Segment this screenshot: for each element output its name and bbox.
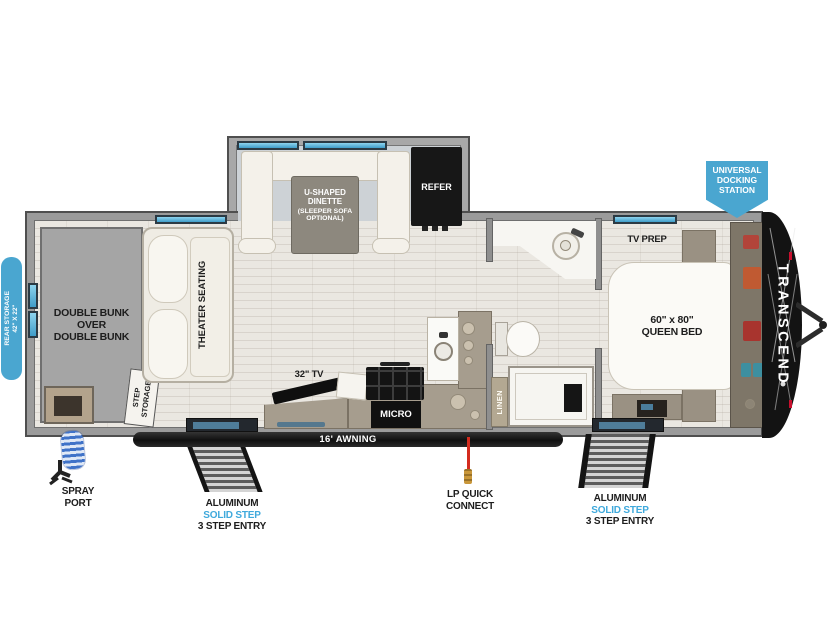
- nightstand-bottom: [682, 388, 716, 422]
- micro-label: MICRO: [380, 409, 412, 420]
- storage-knob: [745, 399, 755, 409]
- entry-door-right: [592, 418, 664, 432]
- entry-steps-left: [187, 447, 262, 492]
- rear-window-bottom: [28, 311, 38, 338]
- steps-left-line-blue: SOLID STEP: [188, 510, 276, 522]
- sink-counter: [427, 317, 459, 381]
- rear-storage-callout: REAR STORAGE 42" X 22": [1, 257, 22, 380]
- steps-right-line-blue: SOLID STEP: [576, 505, 664, 517]
- burner-cover: [462, 322, 475, 335]
- microwave: MICRO: [371, 401, 421, 428]
- linen-label: LINEN: [495, 390, 504, 415]
- refrigerator: REFER: [411, 147, 462, 226]
- tv-stand-shelf: [277, 422, 325, 427]
- rv-floorplan: U-SHAPED DINETTE (SLEEPER SOFA OPTIONAL)…: [0, 0, 828, 644]
- theater-window: [155, 215, 227, 224]
- queen-bed: 60" x 80" QUEEN BED: [608, 262, 736, 390]
- theater-seating-label: THEATER SEATING: [197, 240, 215, 370]
- storage-item-red: [743, 235, 759, 249]
- counter-flap: [336, 372, 369, 401]
- theater-cushion: [148, 309, 188, 379]
- shower: [508, 366, 594, 427]
- entry-steps-right: [578, 434, 656, 488]
- steps-left-line: 3 STEP ENTRY: [188, 521, 276, 533]
- queen-bed-label: QUEEN BED: [642, 326, 703, 338]
- dinette-label: U-SHAPED: [292, 188, 358, 197]
- hitch-tongue: [796, 300, 828, 350]
- rear-window-top: [28, 283, 38, 309]
- bath-wall: [486, 218, 493, 262]
- spray-port-spigot: [46, 458, 78, 486]
- front-storage: [730, 222, 764, 428]
- burner-cover: [470, 410, 480, 420]
- storage-item-orange: [743, 267, 761, 289]
- toilet: [506, 321, 540, 357]
- bunk-label: OVER: [42, 319, 141, 331]
- spray-port-line: SPRAY: [48, 486, 108, 498]
- storage-item-red: [743, 321, 761, 341]
- dinette-armrest-left: [238, 238, 276, 254]
- lp-label: LP QUICK CONNECT: [430, 489, 510, 512]
- awning-bar: 16' AWNING: [133, 432, 563, 447]
- steps-right-label: ALUMINUM SOLID STEP 3 STEP ENTRY: [576, 493, 664, 528]
- dinette-seat-right: [377, 151, 410, 245]
- shower-fixture: [564, 384, 582, 412]
- steps-left-label: ALUMINUM SOLID STEP 3 STEP ENTRY: [188, 498, 276, 533]
- entry-door-left: [186, 418, 258, 432]
- linen-cabinet: LINEN: [491, 377, 508, 427]
- bath-wall: [595, 218, 602, 290]
- dinette-table: U-SHAPED DINETTE (SLEEPER SOFA OPTIONAL): [291, 176, 359, 254]
- rear-cubby-opening: [54, 396, 82, 416]
- lp-connector: [464, 469, 472, 484]
- bedroom-cabinet-screen: [641, 404, 653, 410]
- refer-vents: [422, 226, 452, 231]
- burner-cover: [464, 356, 473, 365]
- dinette-seat-left: [241, 151, 273, 245]
- slideout-window-right: [303, 141, 387, 150]
- lp-line-text: LP QUICK: [430, 489, 510, 501]
- lp-line: [467, 437, 470, 471]
- bunk-label: DOUBLE BUNK: [42, 307, 141, 319]
- spray-port-label: SPRAY PORT: [48, 486, 108, 509]
- storage-item-teal: [741, 363, 751, 377]
- bedroom-cabinet: [612, 394, 682, 420]
- steps-left-line: ALUMINUM: [188, 498, 276, 510]
- rear-cubby: [44, 386, 94, 424]
- theater-cushion: [148, 235, 188, 303]
- stove-handle: [380, 362, 410, 366]
- nightstand-top: [682, 230, 716, 264]
- refer-label: REFER: [421, 182, 452, 192]
- tv-prep-label: TV PREP: [612, 234, 682, 245]
- burner-cover: [450, 394, 466, 410]
- dinette-label: (SLEEPER SOFA: [292, 208, 358, 215]
- kitchen-sink: [434, 342, 453, 361]
- docking-station-callout: UNIVERSAL DOCKING STATION: [706, 161, 768, 218]
- rear-storage-label: 42" X 22": [12, 291, 21, 346]
- stove-cooktop: [366, 367, 424, 400]
- steps-right-line: ALUMINUM: [576, 493, 664, 505]
- bedroom-window: [613, 215, 677, 224]
- kitchen-faucet: [439, 332, 448, 338]
- dinette-armrest-right: [372, 238, 410, 254]
- brand-logo: TRANSCEND: [774, 264, 790, 387]
- entry-mat-left: [193, 422, 239, 429]
- queen-bed-label: 60" x 80": [650, 314, 693, 326]
- burner-cover: [463, 340, 474, 351]
- entry-mat-right: [599, 422, 645, 429]
- rear-storage-label: REAR STORAGE: [3, 291, 12, 346]
- dinette-label: OPTIONAL): [292, 215, 358, 222]
- lp-line-text: CONNECT: [430, 501, 510, 513]
- awning-label: 16' AWNING: [319, 434, 376, 445]
- dinette-label: DINETTE: [292, 197, 358, 206]
- spray-port-line: PORT: [48, 498, 108, 510]
- bath-sink-drain: [560, 240, 571, 251]
- bunk-label: DOUBLE BUNK: [42, 331, 141, 343]
- slideout-window-left: [237, 141, 299, 150]
- theater-seating: [142, 227, 234, 383]
- tv-32-label: 32" TV: [283, 369, 335, 380]
- steps-right-line: 3 STEP ENTRY: [576, 516, 664, 528]
- docking-label: STATION: [706, 186, 768, 196]
